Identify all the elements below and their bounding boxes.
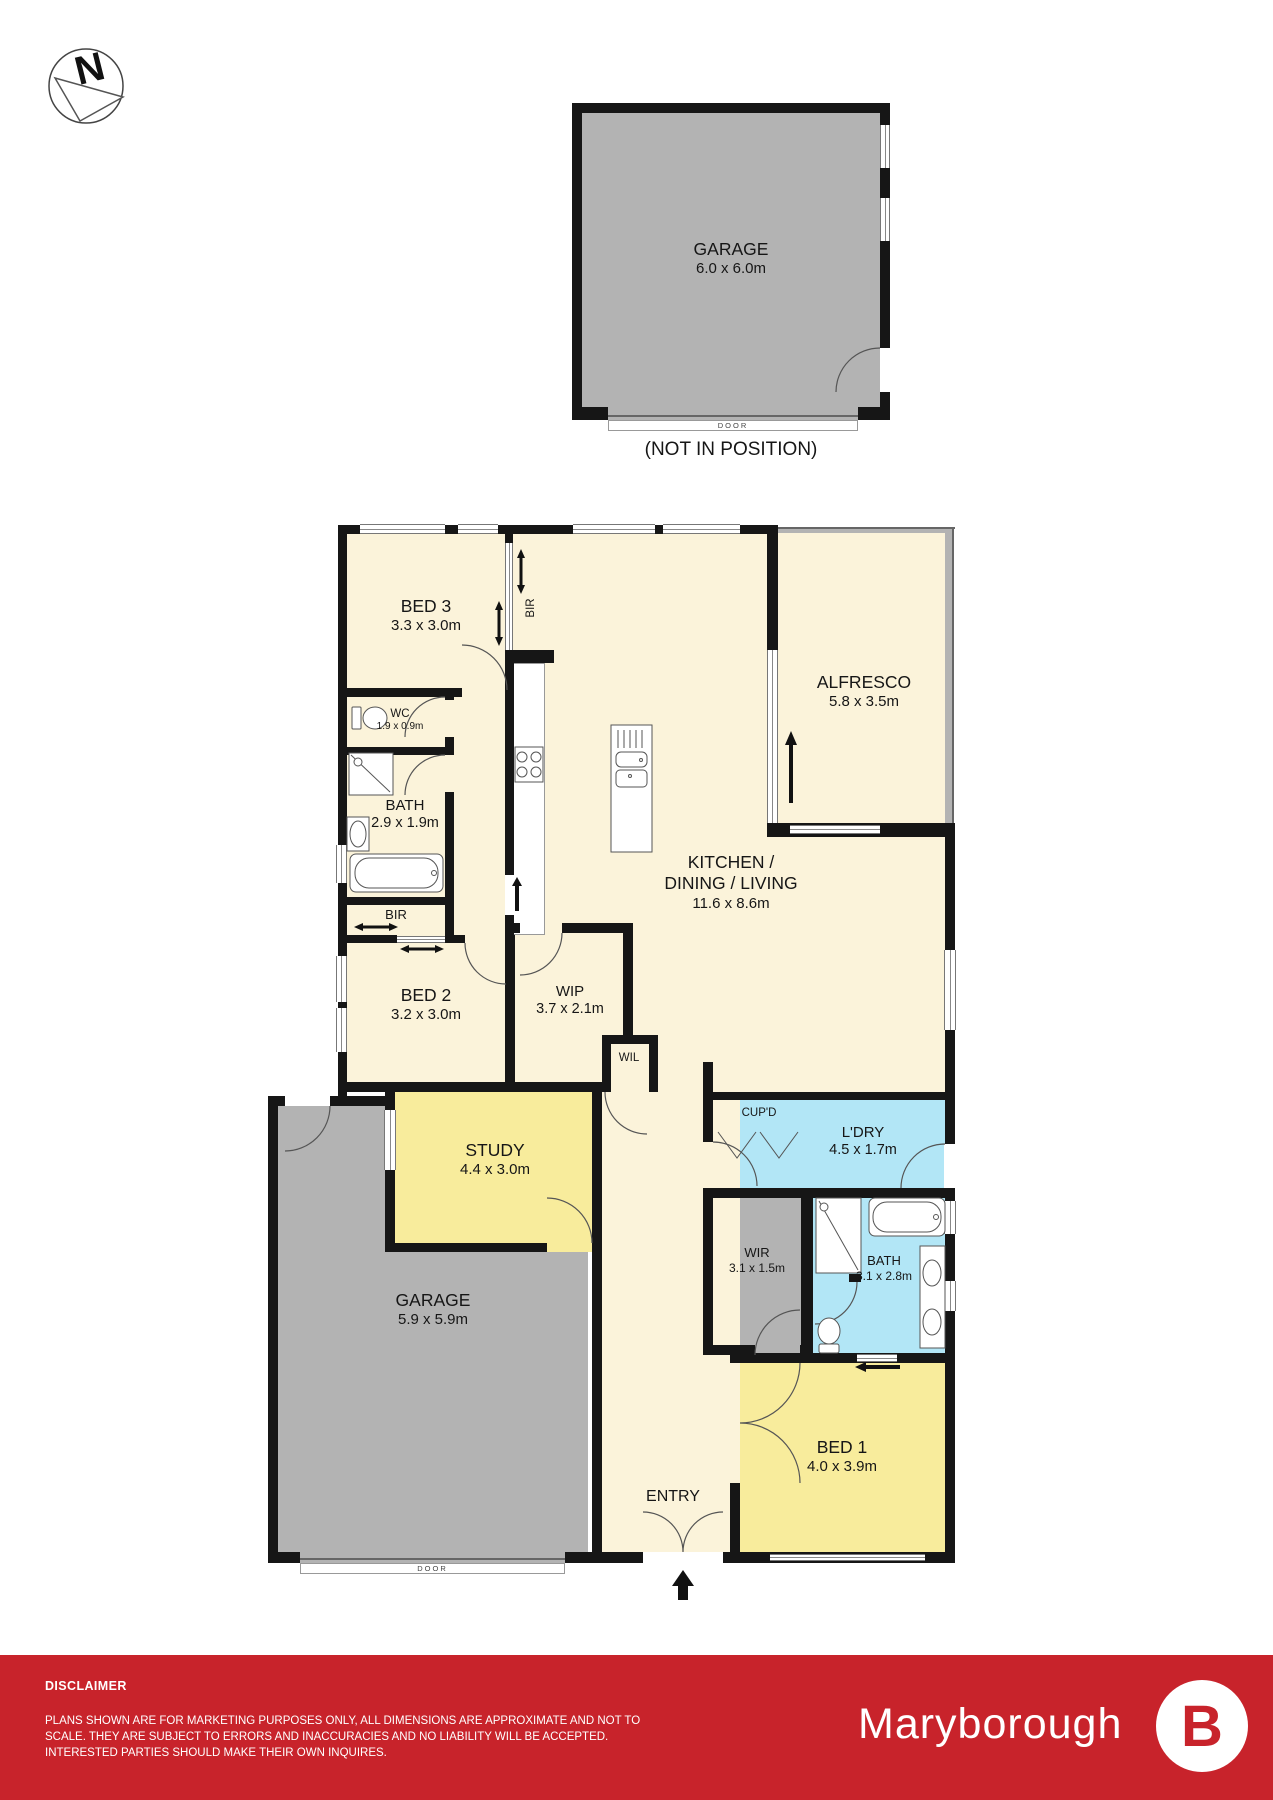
- window: [770, 1554, 925, 1561]
- room-label-garage: GARAGE 5.9 x 5.9m: [396, 1290, 471, 1330]
- wall-segment: [513, 923, 520, 933]
- wall-segment: [945, 835, 955, 1563]
- disclaimer-heading: DISCLAIMER: [45, 1679, 127, 1693]
- room-label-bed2: BED 2 3.2 x 3.0m: [391, 985, 461, 1025]
- wall-segment: [592, 1092, 602, 1252]
- window: [880, 198, 890, 241]
- entry-arrow: [672, 1570, 694, 1600]
- wall-segment: [572, 103, 582, 420]
- outline-line: [777, 527, 955, 529]
- disclaimer-body: PLANS SHOWN ARE FOR MARKETING PURPOSES O…: [45, 1713, 645, 1761]
- window: [336, 956, 347, 1002]
- window: [397, 936, 445, 943]
- room-fill-detached-door-gap: [608, 407, 858, 420]
- room-label-alfresco: ALFRESCO 5.8 x 3.5m: [817, 672, 911, 712]
- window: [767, 650, 778, 823]
- door-opening: [880, 348, 890, 392]
- room-label-wir: WIR 3.1 x 1.5m: [729, 1245, 785, 1275]
- brand-logo: B: [1154, 1678, 1250, 1774]
- room-label-bed1: BED 1 4.0 x 3.9m: [807, 1437, 877, 1477]
- wall-segment: [562, 923, 633, 933]
- wall-segment: [703, 1062, 713, 1096]
- room-label-entry: ENTRY: [646, 1487, 700, 1507]
- door-opening: [944, 1144, 956, 1188]
- brand-logo-letter: B: [1181, 1694, 1223, 1759]
- window: [336, 1008, 347, 1052]
- wall-segment: [730, 1483, 740, 1552]
- wall-segment: [703, 1092, 945, 1100]
- wall-segment: [268, 1096, 278, 1563]
- room-label-wip: WIP 3.7 x 2.1m: [536, 983, 604, 1019]
- wall-segment: [623, 978, 633, 1035]
- compass-icon: N: [40, 38, 140, 138]
- wall-segment: [703, 1188, 945, 1198]
- window: [663, 524, 740, 534]
- window: [880, 125, 890, 168]
- wall-segment: [572, 103, 890, 113]
- wall-segment: [602, 1035, 658, 1044]
- room-label-kitchen-dining-living: KITCHEN / DINING / LIVING 11.6 x 8.6m: [664, 852, 797, 913]
- window: [336, 845, 347, 883]
- wall-segment: [445, 737, 454, 755]
- window: [505, 543, 513, 650]
- room-label-bath-ens: BATH 3.1 x 2.8m: [856, 1253, 912, 1283]
- room-label-bir-bed2: BIR: [385, 907, 407, 923]
- window: [857, 1354, 897, 1362]
- room-label-bed3: BED 3 3.3 x 3.0m: [391, 596, 461, 636]
- window: [790, 825, 880, 834]
- wall-segment: [801, 1198, 813, 1355]
- room-label-wc: WC 1.9 x 0.9m: [377, 707, 424, 733]
- wall-segment: [385, 1082, 603, 1092]
- window: [458, 524, 498, 534]
- window: [573, 524, 655, 534]
- wall-segment: [767, 525, 778, 650]
- garage2-door-band: DOOR: [300, 1563, 565, 1574]
- window: [944, 1201, 956, 1234]
- window: [944, 1281, 956, 1311]
- room-label-detached-garage: GARAGE 6.0 x 6.0m: [694, 239, 769, 279]
- wall-segment: [505, 935, 515, 1090]
- brand-name: Maryborough: [858, 1700, 1122, 1749]
- window: [944, 950, 956, 1030]
- room-label-cupd: CUP'D: [742, 1106, 777, 1120]
- wall-segment: [565, 1552, 643, 1563]
- wall-segment: [338, 688, 462, 697]
- wall-segment: [592, 1252, 602, 1552]
- wall-segment: [703, 1188, 713, 1355]
- room-label-bath: BATH 2.9 x 1.9m: [371, 797, 439, 833]
- wall-segment: [925, 1552, 945, 1563]
- outline-line: [300, 1558, 565, 1560]
- wall-segment: [338, 897, 450, 905]
- room-label-bir-bed3: BIR: [524, 598, 538, 617]
- room-label-study: STUDY 4.4 x 3.0m: [460, 1140, 530, 1180]
- room-label-wil: WIL: [619, 1051, 639, 1065]
- garage-door-band: DOOR: [608, 420, 858, 431]
- floor-plan-page: N: [0, 0, 1273, 1800]
- wall-segment: [505, 650, 554, 663]
- outline-line: [608, 415, 858, 417]
- room-fill-corridor: [592, 1092, 740, 1552]
- wall-segment: [338, 747, 450, 755]
- wall-segment: [268, 1096, 285, 1106]
- wall-segment: [385, 1243, 547, 1252]
- room-label-ldry: L'DRY 4.5 x 1.7m: [829, 1124, 897, 1160]
- room-fill-garage-west: [278, 1106, 385, 1552]
- wall-segment: [703, 1100, 713, 1142]
- wall-segment: [445, 935, 465, 943]
- window: [360, 524, 445, 534]
- wall-segment: [445, 792, 454, 905]
- window: [384, 1110, 396, 1170]
- wall-segment: [723, 1552, 770, 1563]
- wall-segment: [730, 1353, 945, 1363]
- kitchen-bench: [513, 663, 545, 935]
- not-in-position-caption: (NOT IN POSITION): [645, 438, 818, 461]
- door-opening: [505, 875, 514, 915]
- outline-line: [952, 527, 954, 835]
- wall-segment: [623, 933, 633, 978]
